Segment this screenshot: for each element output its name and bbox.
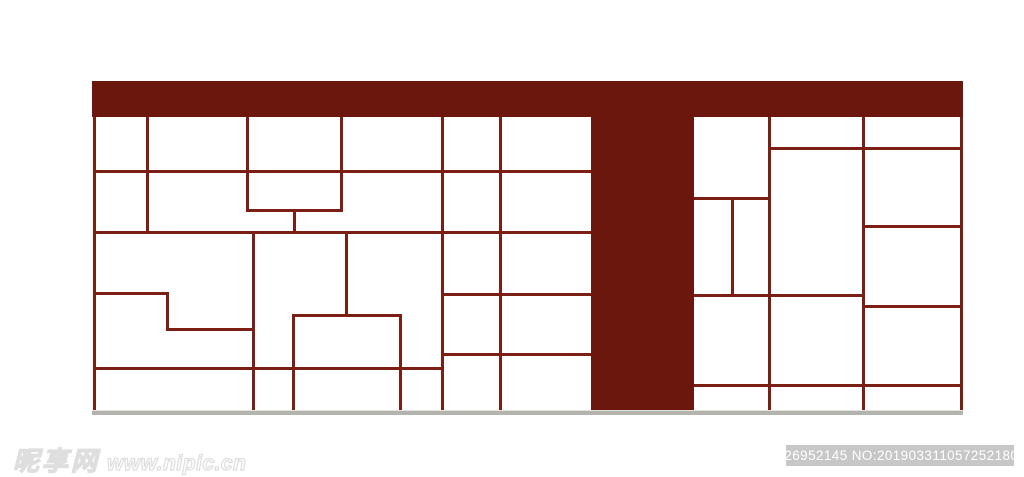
- lattice-line: [441, 293, 591, 296]
- lattice-line: [166, 292, 169, 331]
- lattice-line: [93, 231, 591, 234]
- lattice-line: [399, 314, 402, 411]
- lattice-line: [246, 117, 249, 212]
- lattice-line: [246, 209, 343, 212]
- lattice-line: [499, 117, 502, 411]
- lattice-line: [345, 231, 348, 316]
- lattice-line: [441, 353, 591, 356]
- ground-line: [92, 410, 963, 415]
- lattice-line: [292, 314, 402, 317]
- lattice-line: [93, 170, 591, 173]
- lattice-line: [694, 197, 771, 200]
- lattice-line: [768, 147, 963, 150]
- lattice-line: [694, 294, 865, 297]
- lattice-line: [862, 117, 865, 411]
- lattice-line: [166, 328, 255, 331]
- lattice-artwork: 昵享网 www.nipic.cn ID:26952145 NO:20190331…: [0, 0, 1024, 477]
- lattice-line: [768, 117, 771, 411]
- lattice-line: [731, 197, 734, 297]
- lattice-line: [292, 314, 295, 411]
- lattice-line: [862, 225, 963, 228]
- center-post: [591, 117, 694, 411]
- nipic-site-text: www.nipic.cn: [107, 452, 246, 476]
- lattice-line: [862, 305, 963, 308]
- lattice-line: [93, 292, 169, 295]
- lattice-line: [252, 231, 255, 411]
- id-badge: ID:26952145 NO:20190331105725218083: [786, 445, 1014, 466]
- top-beam: [92, 81, 963, 117]
- lattice-line: [293, 209, 296, 233]
- lattice-line: [340, 117, 343, 212]
- lattice-line: [93, 367, 444, 370]
- nipic-logo-text: 昵享网: [13, 441, 100, 477]
- nipic-watermark: 昵享网 www.nipic.cn: [13, 441, 246, 477]
- lattice-line: [146, 117, 149, 232]
- lattice-line: [694, 384, 963, 387]
- lattice-line: [960, 117, 963, 411]
